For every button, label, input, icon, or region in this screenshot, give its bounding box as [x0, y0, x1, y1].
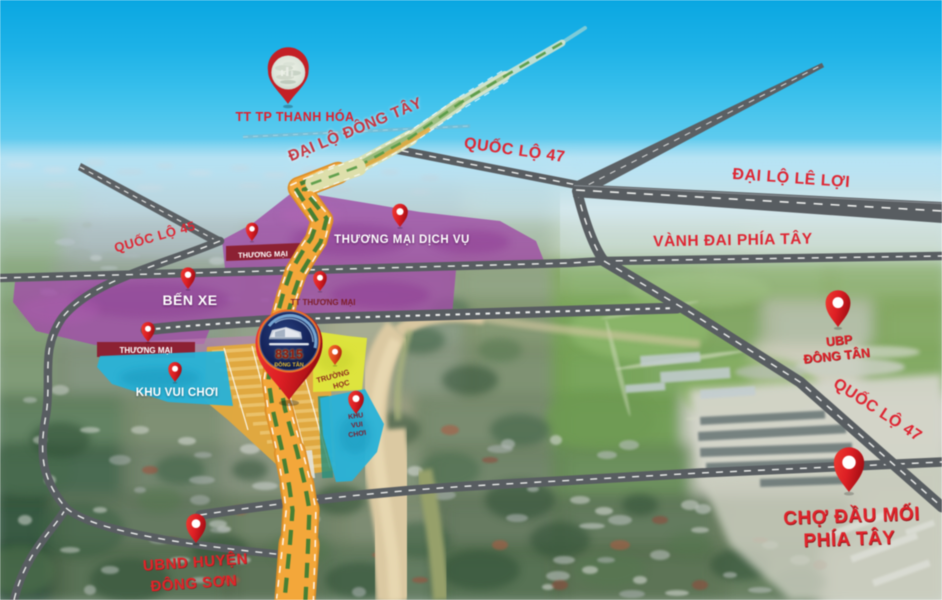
svg-text:THƯƠNG MẠI DỊCH VỤ: THƯƠNG MẠI DỊCH VỤ: [334, 234, 470, 246]
svg-text:8315: 8315: [275, 348, 303, 362]
svg-text:THƯƠNG MẠI: THƯƠNG MẠI: [238, 249, 288, 260]
svg-text:BẾN XE: BẾN XE: [162, 292, 217, 308]
svg-text:KHU VUI CHƠI: KHU VUI CHƠI: [136, 387, 219, 399]
svg-text:ĐÔNG TÂN: ĐÔNG TÂN: [274, 361, 303, 369]
svg-text:TT TP THANH HÓA: TT TP THANH HÓA: [236, 109, 355, 124]
svg-text:TT THƯƠNG MẠI: TT THƯƠNG MẠI: [290, 298, 355, 307]
svg-text:PHÍA TÂY: PHÍA TÂY: [803, 526, 896, 551]
svg-text:THƯƠNG MẠI: THƯƠNG MẠI: [119, 346, 172, 355]
svg-text:VÀNH ĐAI PHÍA TÂY: VÀNH ĐAI PHÍA TÂY: [653, 230, 813, 251]
svg-text:UBP: UBP: [825, 332, 853, 349]
